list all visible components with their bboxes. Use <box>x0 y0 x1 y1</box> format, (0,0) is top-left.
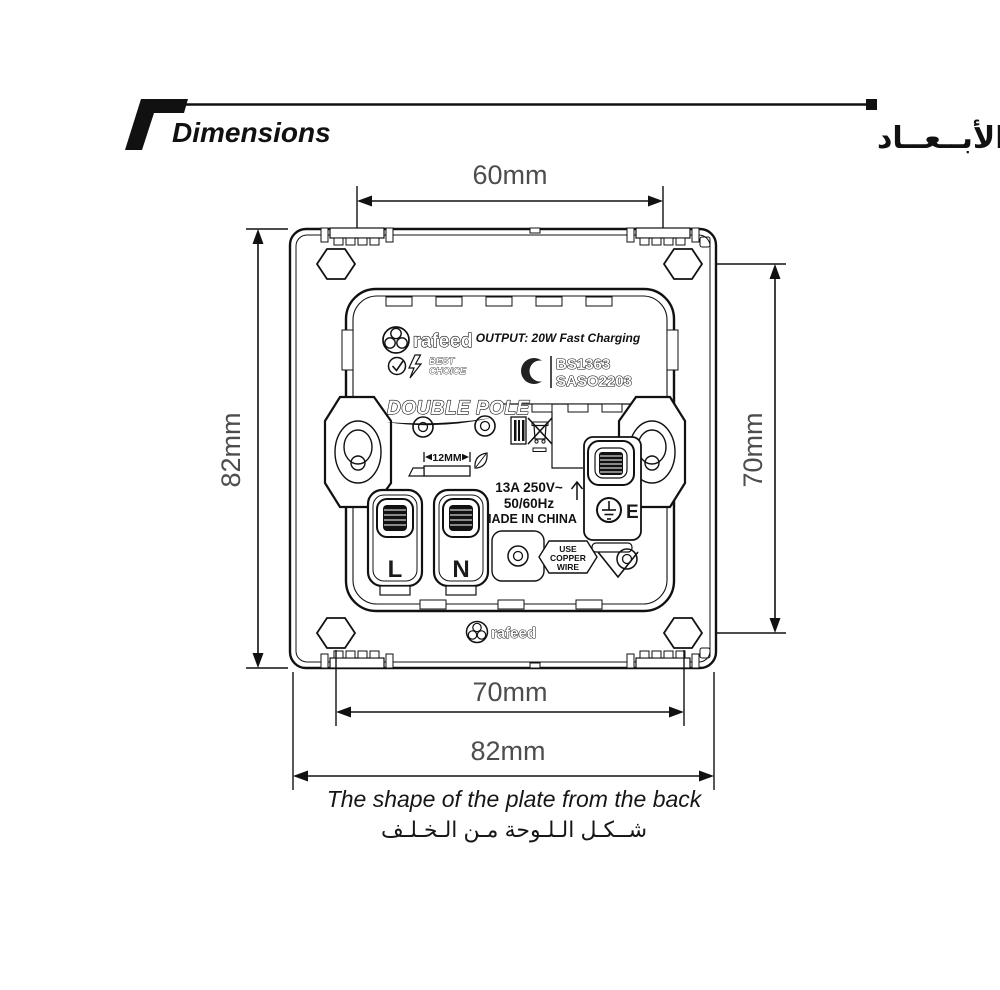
page: Dimensions الأبــعــاد 60mm 82mm 70mm <box>0 0 1000 990</box>
copper-wire-badge: USE COPPER WIRE <box>539 541 597 573</box>
wire-line3: WIRE <box>557 562 580 572</box>
rating-line3: MADE IN CHINA <box>481 512 577 526</box>
earth-label: E <box>626 502 639 523</box>
dimension-left-label: 82mm <box>216 412 246 487</box>
page-title: Dimensions <box>172 117 331 148</box>
cert-bs1363: BS1363 <box>556 356 610 373</box>
dimension-bottom-outer-label: 82mm <box>470 736 545 766</box>
arrowhead-right <box>648 196 663 207</box>
rating-line1: 13A 250V~ <box>495 480 563 495</box>
header-rule-end-square <box>866 99 877 110</box>
arrowhead-left <box>357 196 372 207</box>
cert-saso: SASO2203 <box>556 373 632 390</box>
caption-ar: شــكـل الـلـوحة مـن الـخـلـف <box>381 817 647 842</box>
dimension-bottom-inner-label: 70mm <box>472 677 547 707</box>
rating-line2: 50/60Hz <box>504 496 555 511</box>
neutral-terminal: N <box>434 490 488 595</box>
output-label: OUTPUT: 20W Fast Charging <box>476 331 641 345</box>
dimension-right-label: 70mm <box>738 412 768 487</box>
dimensions-diagram: Dimensions الأبــعــاد 60mm 82mm 70mm <box>0 0 1000 990</box>
choice-label: CHOICE <box>429 366 467 377</box>
brand-name-top: rafeed <box>413 331 473 352</box>
dimension-left: 82mm <box>216 229 288 668</box>
barcode-icon <box>511 417 526 444</box>
strip-gauge-label: 12MM <box>432 452 461 464</box>
double-pole-label: DOUBLE POLE <box>387 398 531 419</box>
live-label: L <box>388 556 403 583</box>
page-title-arabic: الأبــعــاد <box>877 119 1000 155</box>
brand-name-bottom: rafeed <box>491 625 536 642</box>
header: Dimensions الأبــعــاد <box>125 99 1000 155</box>
caption-en: The shape of the plate from the back <box>327 786 703 812</box>
dimension-top-label: 60mm <box>472 160 547 190</box>
live-terminal: L <box>368 490 422 595</box>
plate-drawing: rafeed BEST CHOICE OUTPUT: 20W Fast Char… <box>290 228 716 668</box>
neutral-label: N <box>452 556 469 583</box>
caption: The shape of the plate from the back شــ… <box>327 786 703 842</box>
